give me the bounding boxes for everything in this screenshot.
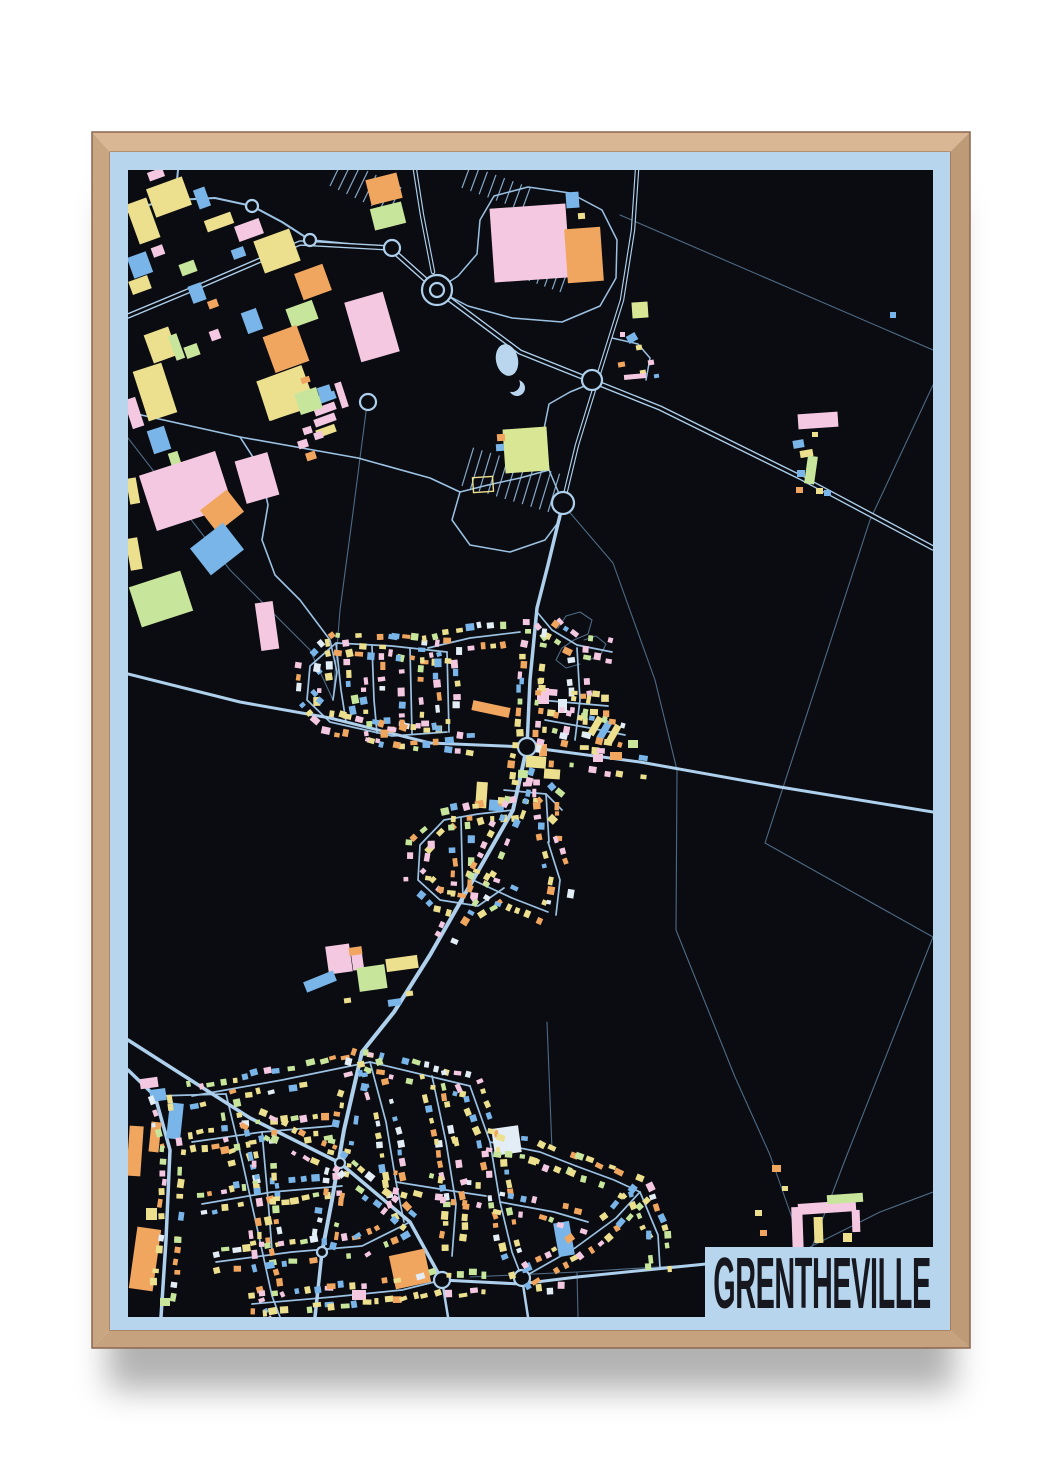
house — [511, 780, 519, 786]
building — [760, 1230, 767, 1236]
building — [798, 412, 839, 430]
house — [304, 1136, 312, 1143]
house — [323, 1188, 329, 1195]
house — [435, 639, 440, 647]
house — [363, 710, 368, 714]
house — [329, 710, 335, 717]
frame-bottom-rail — [92, 1330, 970, 1348]
house — [253, 1184, 260, 1188]
house — [534, 700, 539, 706]
house — [287, 1066, 295, 1072]
house — [444, 746, 453, 754]
house — [422, 741, 430, 748]
house — [560, 740, 568, 748]
house — [327, 1303, 335, 1311]
house — [505, 1151, 513, 1158]
house — [242, 1184, 247, 1191]
house — [433, 679, 441, 688]
house — [174, 1246, 181, 1253]
house — [453, 669, 458, 676]
house — [338, 1197, 344, 1206]
house — [445, 737, 454, 744]
house — [150, 1278, 157, 1285]
house — [385, 1295, 394, 1302]
house — [174, 1237, 181, 1243]
building — [356, 964, 387, 992]
house — [603, 710, 609, 717]
house — [375, 738, 380, 743]
house — [250, 1308, 255, 1314]
house — [453, 694, 461, 700]
house — [592, 690, 600, 697]
house — [535, 690, 541, 695]
house — [423, 728, 430, 733]
house — [433, 739, 439, 746]
house — [341, 1303, 350, 1308]
house — [547, 886, 556, 895]
house — [465, 822, 471, 830]
house — [242, 1244, 251, 1252]
house — [276, 1278, 283, 1287]
house — [281, 1261, 287, 1267]
house — [519, 1154, 525, 1159]
house — [537, 678, 542, 684]
house — [500, 622, 506, 630]
house — [273, 1219, 279, 1224]
house — [159, 1170, 165, 1176]
building — [796, 487, 803, 493]
house — [558, 1282, 565, 1289]
house — [346, 681, 351, 687]
house — [307, 1306, 313, 1313]
house — [481, 642, 486, 649]
house — [323, 1178, 330, 1184]
house — [367, 652, 375, 660]
house — [560, 707, 565, 712]
house — [520, 661, 527, 669]
house — [360, 1083, 368, 1092]
house — [317, 688, 322, 693]
house — [452, 701, 459, 708]
house — [384, 717, 391, 724]
house — [580, 694, 586, 699]
house — [366, 721, 372, 727]
house — [311, 1174, 320, 1182]
house — [420, 712, 425, 718]
house — [475, 1182, 480, 1189]
house — [256, 1198, 264, 1207]
house — [413, 746, 419, 751]
house — [596, 748, 605, 754]
house — [248, 1292, 255, 1299]
house — [451, 1199, 456, 1205]
house — [443, 637, 451, 643]
house — [584, 678, 590, 685]
house — [380, 1153, 385, 1158]
house — [504, 1169, 509, 1174]
house — [288, 1177, 295, 1183]
house — [667, 1266, 672, 1272]
house — [451, 870, 455, 877]
house — [455, 1159, 462, 1168]
house — [288, 1259, 297, 1264]
house — [289, 1239, 295, 1245]
house — [271, 1290, 278, 1296]
house — [162, 1179, 167, 1186]
house — [448, 824, 454, 830]
house — [418, 665, 424, 672]
house — [381, 1277, 387, 1283]
house — [535, 1284, 542, 1292]
house — [220, 1078, 227, 1085]
house — [410, 655, 416, 660]
house — [175, 1137, 182, 1146]
house — [337, 1280, 343, 1288]
house — [533, 779, 540, 785]
house — [327, 1283, 336, 1289]
building — [782, 1186, 788, 1191]
house — [554, 802, 559, 811]
house — [174, 1270, 180, 1275]
house — [314, 1286, 321, 1294]
house — [251, 1250, 258, 1260]
house — [481, 1271, 486, 1279]
house — [264, 1242, 271, 1249]
house — [160, 1159, 167, 1165]
house — [437, 886, 444, 893]
house — [399, 701, 406, 708]
house — [346, 670, 352, 678]
building — [648, 360, 655, 366]
house — [379, 653, 384, 660]
house — [380, 730, 388, 738]
house — [451, 881, 458, 886]
house — [300, 1176, 307, 1183]
house — [234, 1143, 241, 1151]
house — [208, 1128, 214, 1133]
house — [467, 733, 475, 738]
building — [565, 192, 579, 209]
house — [499, 1192, 505, 1197]
framed-map-poster: GRENTHEVILLE — [0, 0, 1058, 1480]
house — [430, 1085, 436, 1090]
house — [410, 740, 417, 745]
house — [176, 1194, 183, 1199]
house — [296, 683, 302, 692]
house — [351, 1300, 358, 1308]
house — [520, 640, 528, 648]
house — [446, 1273, 451, 1278]
house — [519, 678, 524, 685]
house — [511, 798, 516, 803]
house — [493, 1151, 502, 1158]
house — [377, 634, 384, 640]
house — [645, 1263, 651, 1270]
house — [434, 658, 441, 667]
house — [451, 660, 459, 669]
house — [521, 1136, 528, 1141]
house — [664, 1231, 671, 1239]
house — [562, 1203, 569, 1210]
house — [438, 1176, 444, 1184]
house — [272, 1196, 280, 1201]
house — [582, 646, 588, 653]
house — [519, 654, 525, 660]
house — [455, 680, 461, 686]
house — [399, 669, 405, 674]
house — [665, 1242, 670, 1248]
house — [456, 731, 463, 739]
house — [278, 1241, 284, 1247]
building — [352, 1290, 366, 1300]
house — [533, 802, 541, 810]
house — [436, 726, 442, 732]
house — [514, 719, 521, 727]
frame-right-rail — [950, 132, 970, 1348]
building — [797, 470, 805, 477]
house — [555, 811, 559, 815]
building — [406, 991, 414, 997]
house — [472, 803, 479, 808]
building — [344, 998, 352, 1004]
house — [442, 1244, 449, 1251]
house — [549, 689, 558, 696]
building — [503, 427, 550, 474]
house — [487, 622, 495, 629]
house — [444, 1101, 451, 1108]
house — [156, 1245, 163, 1253]
house — [207, 1191, 212, 1196]
house — [567, 889, 575, 899]
house — [440, 1197, 446, 1204]
house — [507, 760, 515, 768]
house — [604, 771, 611, 777]
house — [454, 1071, 462, 1076]
house — [221, 1247, 229, 1252]
house — [158, 1234, 164, 1241]
house — [446, 719, 451, 724]
building — [654, 374, 660, 379]
house — [451, 816, 456, 822]
house — [197, 1193, 204, 1198]
house — [507, 1193, 514, 1200]
house — [152, 1268, 159, 1273]
frame-top-rail — [92, 132, 970, 152]
house — [455, 748, 461, 753]
house — [536, 833, 543, 840]
house — [571, 691, 577, 695]
house — [234, 1266, 241, 1272]
house — [245, 1092, 253, 1098]
house — [486, 1171, 493, 1178]
house — [512, 1219, 517, 1225]
house — [296, 674, 301, 681]
building — [636, 345, 643, 351]
house — [325, 673, 333, 681]
house — [393, 1170, 398, 1175]
house — [364, 731, 369, 737]
house — [221, 1125, 228, 1132]
house — [567, 679, 573, 686]
house — [467, 645, 474, 650]
house — [236, 1112, 242, 1118]
house — [177, 1167, 182, 1176]
house — [522, 1268, 527, 1273]
house — [410, 724, 416, 730]
house — [181, 1149, 186, 1155]
house — [159, 1188, 165, 1195]
house — [443, 1221, 448, 1226]
house — [335, 633, 340, 638]
house — [532, 789, 536, 798]
building — [497, 434, 505, 442]
house — [417, 677, 423, 682]
house — [322, 1238, 327, 1245]
house — [321, 1113, 329, 1120]
house — [342, 639, 349, 647]
building — [564, 227, 604, 283]
house — [605, 658, 612, 664]
house — [500, 1159, 507, 1167]
house — [640, 774, 647, 779]
house — [422, 635, 427, 642]
house — [421, 721, 429, 727]
poster-canvas: GRENTHEVILLE — [0, 0, 1058, 1480]
house — [516, 729, 524, 737]
house — [470, 1287, 478, 1293]
house — [299, 1115, 307, 1123]
house — [449, 847, 456, 853]
house — [272, 1068, 280, 1074]
building — [812, 432, 818, 437]
house — [355, 651, 364, 656]
house — [435, 705, 440, 713]
house — [379, 644, 386, 649]
house — [403, 877, 408, 882]
house — [313, 663, 321, 673]
house — [467, 1180, 472, 1185]
house — [436, 1150, 441, 1158]
house — [547, 1288, 554, 1295]
house — [516, 684, 520, 692]
house — [439, 1184, 446, 1191]
house — [532, 730, 538, 737]
house — [288, 1084, 297, 1092]
house — [441, 1211, 449, 1220]
house — [569, 763, 573, 768]
house — [488, 1195, 493, 1201]
house — [314, 1207, 322, 1214]
house — [410, 633, 418, 641]
house — [518, 699, 523, 705]
building — [772, 1165, 781, 1172]
house — [188, 1132, 193, 1139]
house — [399, 713, 405, 717]
house — [281, 1199, 290, 1205]
house — [275, 1183, 280, 1189]
house — [523, 619, 530, 625]
house — [515, 707, 521, 716]
house — [462, 1200, 468, 1207]
house — [151, 1123, 156, 1128]
house — [509, 772, 516, 780]
house — [465, 623, 474, 631]
house — [361, 687, 366, 692]
house — [397, 1140, 405, 1148]
house — [255, 1218, 262, 1227]
house — [170, 1282, 177, 1288]
house — [331, 1119, 340, 1128]
house — [461, 1214, 467, 1222]
house — [609, 719, 616, 725]
house — [444, 658, 451, 664]
house — [450, 803, 458, 811]
house — [201, 1145, 208, 1152]
house — [418, 647, 425, 652]
house — [542, 727, 547, 733]
house — [512, 742, 518, 748]
house — [420, 657, 425, 663]
house — [468, 835, 475, 843]
building — [490, 203, 571, 282]
house — [334, 732, 340, 737]
house — [255, 1120, 260, 1125]
house — [333, 1111, 340, 1117]
house — [259, 1290, 266, 1296]
building — [816, 488, 823, 494]
house — [590, 709, 598, 715]
house — [488, 1202, 494, 1209]
building — [496, 444, 504, 452]
house — [339, 1102, 344, 1108]
house — [593, 652, 601, 660]
house — [312, 1114, 318, 1120]
building — [824, 490, 831, 496]
building — [631, 301, 648, 318]
house — [416, 723, 421, 728]
house — [418, 697, 423, 705]
house — [601, 695, 609, 702]
house — [538, 822, 545, 829]
house — [159, 1146, 164, 1153]
house — [363, 1299, 372, 1304]
house — [518, 1211, 523, 1217]
house — [312, 1229, 318, 1237]
house — [490, 643, 496, 648]
house — [535, 721, 541, 728]
house — [378, 1164, 386, 1174]
house — [539, 663, 546, 671]
house — [397, 1149, 401, 1155]
building — [852, 1210, 861, 1232]
house — [615, 770, 623, 777]
house — [442, 629, 449, 635]
house — [425, 1105, 433, 1113]
house — [178, 1212, 185, 1221]
house — [398, 688, 405, 697]
building — [843, 1233, 852, 1242]
house — [333, 650, 342, 657]
building — [620, 332, 625, 337]
house — [263, 1310, 268, 1317]
house — [295, 662, 302, 669]
house — [588, 635, 593, 641]
house — [493, 1223, 499, 1228]
house — [396, 655, 401, 662]
house — [270, 1163, 277, 1169]
house — [259, 1242, 264, 1247]
house — [445, 1290, 452, 1298]
